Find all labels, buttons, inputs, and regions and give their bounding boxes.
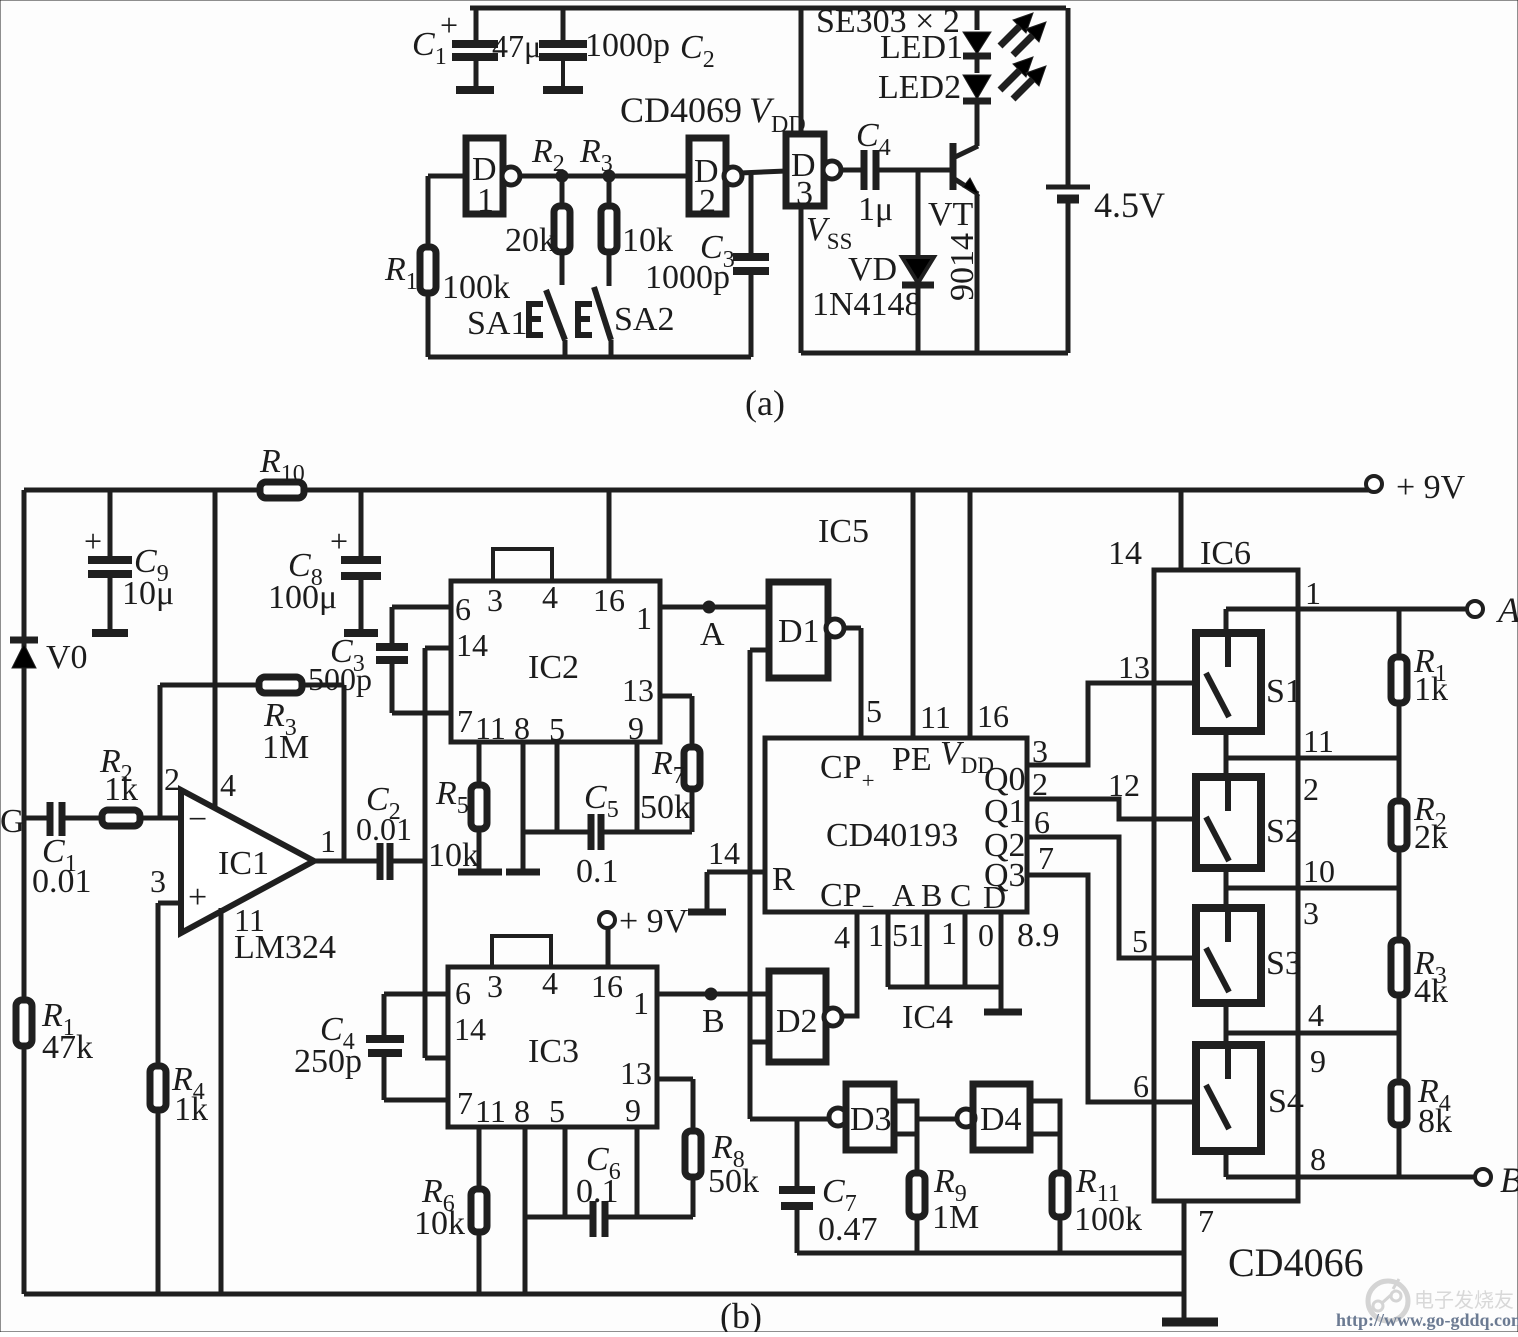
svg-text:11: 11: [475, 710, 506, 746]
svg-text:14: 14: [1108, 535, 1142, 572]
svg-text:51: 51: [892, 917, 924, 953]
svg-text:1M: 1M: [262, 729, 309, 766]
svg-text:50k: 50k: [708, 1163, 759, 1200]
svg-text:3: 3: [487, 968, 503, 1004]
svg-text:LED2: LED2: [878, 69, 961, 106]
svg-text:SA1: SA1: [467, 305, 527, 342]
svg-text:2: 2: [1303, 771, 1319, 807]
svg-text:1: 1: [633, 985, 649, 1021]
svg-text:D4: D4: [980, 1101, 1022, 1138]
svg-text:8.9: 8.9: [1017, 917, 1060, 954]
svg-text:4: 4: [220, 767, 236, 803]
svg-text:10k: 10k: [414, 1205, 465, 1242]
svg-text:13: 13: [622, 672, 654, 708]
svg-text:IC4: IC4: [902, 999, 953, 1036]
svg-text:16: 16: [593, 582, 625, 618]
svg-text:4: 4: [1308, 997, 1324, 1033]
svg-text:10k: 10k: [622, 222, 673, 259]
svg-text:1M: 1M: [932, 1199, 979, 1236]
svg-text:2k: 2k: [1414, 819, 1448, 856]
svg-text:1: 1: [1305, 575, 1321, 611]
svg-text:7: 7: [457, 703, 473, 739]
svg-text:6: 6: [1133, 1068, 1149, 1104]
svg-text:1k: 1k: [174, 1091, 208, 1128]
svg-text:4k: 4k: [1414, 973, 1448, 1010]
svg-text:http://www.go-gddq.com: http://www.go-gddq.com: [1336, 1310, 1518, 1330]
svg-text:LM324: LM324: [234, 929, 336, 966]
svg-text:50k: 50k: [640, 789, 691, 826]
svg-text:6: 6: [1034, 804, 1050, 840]
svg-text:250p: 250p: [294, 1043, 362, 1080]
svg-text:B: B: [921, 877, 942, 913]
svg-text:G: G: [0, 803, 25, 840]
svg-text:7: 7: [1038, 840, 1054, 876]
svg-text:+ 9V: + 9V: [1396, 469, 1466, 506]
svg-text:1: 1: [941, 915, 957, 951]
svg-text:100k: 100k: [442, 269, 510, 306]
svg-text:8k: 8k: [1418, 1103, 1452, 1140]
svg-text:0.01: 0.01: [32, 863, 92, 900]
svg-text:A: A: [1496, 590, 1518, 630]
svg-text:V0: V0: [46, 639, 88, 676]
svg-text:5: 5: [549, 1093, 565, 1129]
svg-text:+: +: [188, 879, 207, 916]
svg-text:47k: 47k: [42, 1029, 93, 1066]
svg-text:1: 1: [320, 823, 336, 859]
svg-text:IC3: IC3: [528, 1033, 579, 1070]
svg-text:7: 7: [457, 1085, 473, 1121]
svg-text:1k: 1k: [104, 771, 138, 808]
svg-text:10: 10: [1303, 853, 1335, 889]
svg-text:8: 8: [1310, 1141, 1326, 1177]
svg-text:4: 4: [834, 919, 850, 955]
svg-text:PE: PE: [892, 741, 932, 778]
svg-text:9: 9: [625, 1092, 641, 1128]
svg-text:S1: S1: [1266, 673, 1302, 710]
svg-text:0.1: 0.1: [576, 853, 619, 890]
svg-text:16: 16: [591, 968, 623, 1004]
svg-text:S3: S3: [1266, 945, 1302, 982]
svg-text:0.1: 0.1: [576, 1173, 619, 1210]
svg-text:10k: 10k: [428, 837, 479, 874]
svg-text:14: 14: [708, 835, 740, 871]
svg-text:+: +: [440, 7, 458, 43]
svg-text:14: 14: [454, 1011, 486, 1047]
svg-text:13: 13: [620, 1055, 652, 1091]
svg-text:4: 4: [542, 579, 558, 615]
svg-text:6: 6: [455, 975, 471, 1011]
svg-text:+ 9V: + 9V: [619, 903, 689, 940]
svg-text:2: 2: [1032, 766, 1048, 802]
svg-text:+: +: [330, 523, 348, 559]
svg-text:0: 0: [978, 917, 994, 953]
svg-text:电子发烧友: 电子发烧友: [1414, 1289, 1514, 1312]
svg-text:11: 11: [1303, 723, 1334, 759]
svg-text:13: 13: [1118, 649, 1150, 685]
svg-text:10μ: 10μ: [122, 575, 174, 612]
svg-text:5: 5: [549, 711, 565, 747]
svg-text:9: 9: [628, 710, 644, 746]
svg-text:7: 7: [1198, 1203, 1214, 1239]
svg-text:1: 1: [636, 600, 652, 636]
svg-text:0.01: 0.01: [356, 811, 412, 847]
svg-text:1000p: 1000p: [585, 27, 670, 64]
svg-text:D2: D2: [776, 1003, 818, 1040]
svg-text:IC2: IC2: [528, 649, 579, 686]
svg-text:20k: 20k: [505, 222, 556, 259]
svg-text:SE303 × 2: SE303 × 2: [816, 3, 960, 40]
svg-text:IC6: IC6: [1200, 535, 1251, 572]
svg-text:−: −: [188, 801, 207, 838]
svg-text:4: 4: [542, 965, 558, 1001]
svg-text:CD40193: CD40193: [826, 817, 958, 854]
svg-text:B: B: [1500, 1160, 1518, 1200]
svg-text:B: B: [702, 1003, 725, 1040]
svg-text:VD: VD: [848, 251, 897, 288]
svg-text:CD4066: CD4066: [1228, 1240, 1364, 1285]
svg-text:3: 3: [150, 863, 166, 899]
svg-text:500p: 500p: [308, 661, 372, 697]
svg-text:4.5V: 4.5V: [1094, 185, 1165, 225]
svg-text:A: A: [700, 616, 725, 653]
svg-text:9: 9: [1310, 1043, 1326, 1079]
svg-text:D1: D1: [778, 613, 820, 650]
svg-text:8: 8: [514, 710, 530, 746]
svg-text:(b): (b): [720, 1296, 762, 1332]
svg-text:12: 12: [1108, 767, 1140, 803]
svg-text:5: 5: [1132, 923, 1148, 959]
svg-text:VT: VT: [928, 196, 974, 233]
svg-text:1: 1: [477, 182, 494, 219]
svg-text:47μ: 47μ: [492, 28, 541, 64]
svg-text:3: 3: [1303, 895, 1319, 931]
svg-text:5: 5: [866, 693, 882, 729]
svg-text:1: 1: [868, 917, 884, 953]
svg-text:1N4148: 1N4148: [812, 286, 922, 323]
svg-text:2: 2: [164, 761, 180, 797]
svg-text:IC1: IC1: [218, 845, 269, 882]
svg-text:11: 11: [475, 1093, 506, 1129]
svg-text:D: D: [983, 879, 1006, 915]
svg-text:C: C: [950, 877, 971, 913]
svg-text:100k: 100k: [1074, 1201, 1142, 1238]
svg-text:8: 8: [514, 1093, 530, 1129]
svg-text:3: 3: [1032, 733, 1048, 769]
svg-text:(a): (a): [745, 383, 785, 423]
svg-text:1000p: 1000p: [645, 259, 730, 296]
svg-text:CD4069: CD4069: [620, 90, 742, 130]
svg-text:+: +: [84, 523, 102, 559]
svg-text:S4: S4: [1268, 1083, 1304, 1120]
svg-text:100μ: 100μ: [268, 579, 337, 616]
svg-text:D3: D3: [850, 1101, 892, 1138]
svg-text:2: 2: [699, 183, 716, 220]
svg-text:11: 11: [920, 699, 951, 735]
svg-text:1μ: 1μ: [858, 191, 893, 228]
svg-text:14: 14: [456, 627, 488, 663]
svg-text:3: 3: [487, 582, 503, 618]
svg-text:9014: 9014: [944, 233, 981, 301]
svg-text:Q1: Q1: [984, 793, 1026, 830]
svg-text:0.47: 0.47: [818, 1211, 878, 1248]
svg-text:SA2: SA2: [614, 301, 674, 338]
svg-text:IC5: IC5: [818, 513, 869, 550]
svg-text:S2: S2: [1266, 813, 1302, 850]
svg-text:R: R: [772, 861, 795, 898]
svg-text:1k: 1k: [1414, 671, 1448, 708]
svg-text:6: 6: [455, 591, 471, 627]
svg-text:A: A: [892, 877, 915, 913]
svg-text:16: 16: [977, 698, 1009, 734]
